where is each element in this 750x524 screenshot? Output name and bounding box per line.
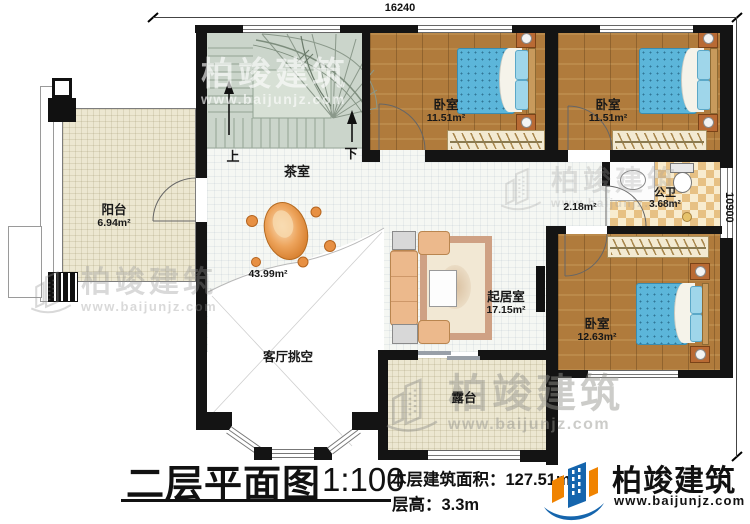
room-name: 卧室: [577, 318, 616, 332]
lamp: [703, 117, 714, 128]
nightstand: [690, 346, 710, 363]
room-label-balcony: 阳台 6.94m²: [97, 204, 130, 229]
pillow: [697, 80, 711, 110]
room-name: 阳台: [97, 204, 130, 218]
column: [48, 272, 78, 302]
room-area: 12.63m²: [577, 332, 616, 343]
brand-logo: [536, 458, 614, 522]
room-area: 43.99m²: [248, 269, 287, 280]
brand-logo-icon: [536, 458, 614, 522]
side-table: [392, 324, 418, 344]
room-label-terrace: 露台: [451, 392, 476, 406]
room-label-bedroom-3: 卧室 12.63m²: [577, 318, 616, 343]
dimension-line-top: [153, 17, 737, 18]
staircase-area: [207, 33, 362, 148]
room-area: 11.51m²: [427, 113, 466, 124]
wall: [610, 150, 722, 162]
room-label-void: 客厅挑空: [263, 351, 313, 365]
wall: [558, 150, 568, 162]
floor-height-label: 层高：: [392, 496, 442, 514]
room-area: 2.18m²: [563, 202, 596, 213]
room-area: 3.68m²: [649, 200, 681, 211]
room-label-tea-room: 茶室: [284, 165, 310, 179]
room-label-hall-area: 43.99m²: [248, 269, 287, 280]
wall: [545, 25, 558, 162]
stairs-up-label: 上: [226, 150, 239, 164]
room-area: 17.15m²: [486, 305, 525, 316]
balcony-floor: [62, 108, 196, 282]
wall: [478, 350, 546, 360]
brand-website: www.baijunjz.com: [614, 493, 745, 508]
pillow: [515, 80, 529, 110]
armchair: [418, 231, 450, 255]
brand-building-icon: [142, 57, 194, 109]
sink: [620, 170, 646, 190]
wall: [558, 370, 588, 378]
wall: [195, 25, 243, 33]
headboard: [710, 48, 718, 114]
side-table: [392, 231, 416, 250]
wall: [546, 234, 558, 465]
room-name: 起居室: [486, 291, 525, 305]
lamp: [695, 266, 706, 277]
wall: [196, 33, 207, 178]
tv: [536, 266, 545, 312]
wall: [378, 450, 428, 460]
title-underline: [121, 499, 391, 502]
floor-drain: [682, 212, 692, 222]
wardrobe: [612, 130, 707, 152]
wall: [602, 162, 610, 186]
room-name: 茶室: [284, 165, 310, 179]
wall: [378, 350, 388, 460]
stairs-down-label: 下: [344, 147, 357, 161]
room-name: 卧室: [427, 99, 466, 113]
wall: [425, 150, 545, 162]
column: [52, 78, 72, 98]
wall: [546, 226, 566, 234]
pillow: [697, 50, 711, 80]
wardrobe: [447, 130, 545, 152]
coffee-table: [429, 270, 457, 307]
room-area: 6.94m²: [97, 218, 130, 229]
column: [48, 98, 76, 122]
window: [600, 25, 693, 33]
wall: [362, 33, 370, 162]
area-note-label: 本层建筑面积：: [390, 471, 506, 489]
lamp: [703, 33, 714, 44]
wall: [607, 226, 722, 234]
room-label-living: 起居室 17.15m²: [486, 291, 525, 316]
room-label-bathroom: 公卫 3.68m²: [649, 188, 681, 211]
roof-outline: [8, 226, 42, 298]
hall-floor: [207, 148, 558, 352]
window: [243, 25, 340, 33]
wall: [340, 25, 418, 33]
room-label-bedroom-1: 卧室 11.51m²: [427, 99, 466, 124]
room-name: 露台: [451, 392, 476, 406]
window: [588, 370, 678, 378]
room-label-hallway: 2.18m²: [563, 202, 596, 213]
wall: [370, 150, 380, 162]
lamp: [521, 117, 532, 128]
wall: [720, 25, 733, 168]
pillow: [515, 50, 529, 80]
nightstand: [690, 263, 710, 280]
armchair: [418, 320, 450, 344]
room-name: 客厅挑空: [263, 351, 313, 365]
sofa: [390, 250, 418, 326]
lamp: [695, 349, 706, 360]
lamp: [521, 33, 532, 44]
window: [418, 25, 512, 33]
floor-height-value: 3.3m: [442, 496, 480, 514]
wall: [720, 238, 733, 378]
wall: [678, 370, 733, 378]
floor-height-note: 层高：3.3m: [392, 491, 479, 515]
window: [428, 450, 520, 460]
wardrobe: [607, 236, 709, 258]
dimension-line-right: [736, 17, 737, 457]
floor-plan: 16240 10900 柏竣建筑 www.baijunjz.com 柏竣建筑 w…: [0, 0, 750, 524]
room-area: 11.51m²: [589, 113, 628, 124]
dimension-top-value: 16240: [385, 2, 416, 14]
room-label-bedroom-2: 卧室 11.51m²: [589, 99, 628, 124]
headboard: [702, 283, 709, 345]
wall: [196, 222, 207, 414]
room-name: 卧室: [589, 99, 628, 113]
headboard: [528, 48, 536, 114]
dimension-right-value: 10900: [723, 192, 735, 223]
